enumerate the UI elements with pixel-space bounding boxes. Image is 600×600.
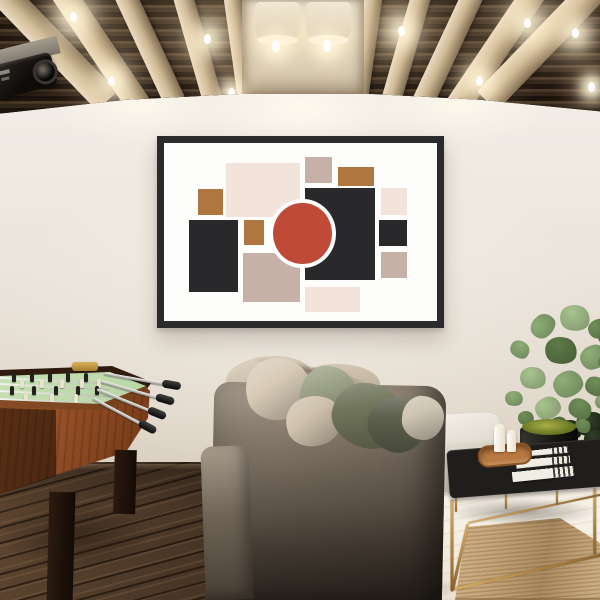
drum-light-right	[306, 2, 351, 42]
light-bulb-6	[524, 18, 531, 28]
sofa-left-arm	[200, 445, 253, 600]
ceiling-light-box	[242, 0, 364, 95]
drum-bulb-right	[323, 40, 331, 52]
room-scene	[0, 0, 600, 600]
light-bulb-2	[204, 34, 211, 44]
foosball-handle-1	[155, 393, 175, 406]
light-bulb-0	[70, 12, 77, 22]
drum-light-left	[255, 2, 300, 42]
light-bulb-1	[108, 76, 115, 86]
light-bulb-5	[476, 76, 483, 86]
foosball-handle-2	[147, 406, 168, 421]
drum-bulb-left	[272, 40, 280, 52]
foosball-table	[0, 360, 190, 600]
light-bulb-7	[572, 28, 579, 38]
foosball-handle-3	[137, 419, 158, 435]
foosball-handle-0	[161, 379, 181, 390]
light-bulb-8	[588, 82, 595, 92]
foosball-rod-3	[92, 397, 142, 425]
foosball-rods	[0, 360, 190, 600]
light-bulb-4	[398, 26, 405, 36]
